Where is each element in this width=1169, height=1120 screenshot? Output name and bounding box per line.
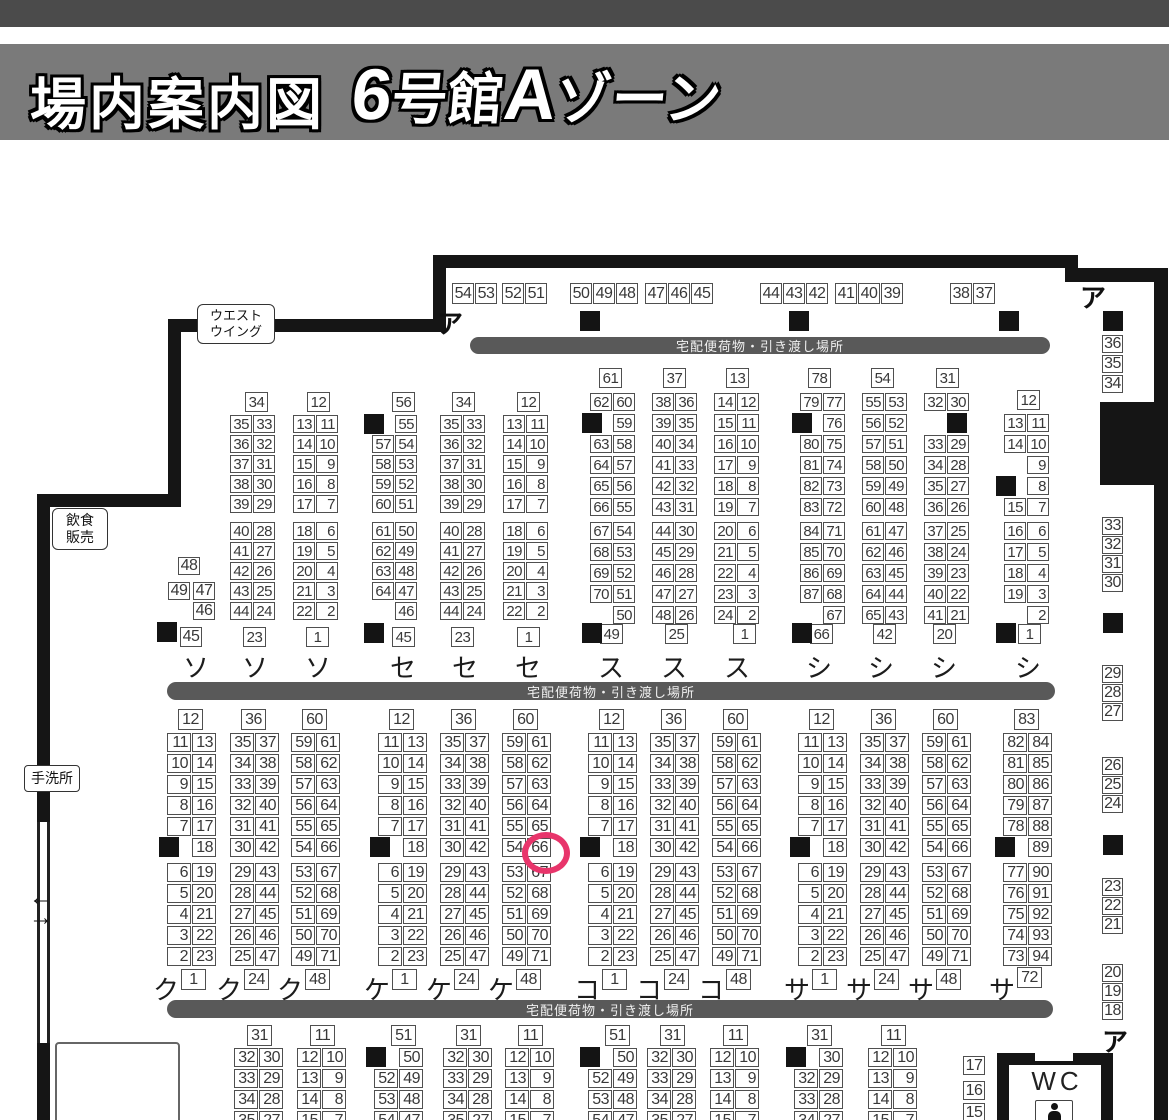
pillar: [370, 837, 390, 857]
booth-cell: 27: [860, 905, 884, 924]
booth-cell: 53: [885, 393, 907, 411]
booth-cell: 17: [823, 817, 847, 836]
booth-box: 16: [963, 1081, 985, 1100]
booth-cell: 14: [403, 754, 427, 773]
booth-cell: 45: [675, 905, 699, 924]
booth-cell: 64: [527, 796, 551, 815]
booth-cell: 38: [255, 754, 279, 773]
booth-cell: 2: [737, 606, 759, 624]
booth-cell: 64: [590, 456, 612, 474]
booth-cell: 11: [378, 733, 402, 752]
booth-cell: 6: [737, 522, 759, 540]
booth-cell: 47: [465, 947, 489, 966]
booth-cell: 5: [737, 543, 759, 561]
wc-label: WC: [1014, 1066, 1100, 1097]
booth-cell: 35: [924, 477, 946, 495]
booth-cell: 38: [675, 754, 699, 773]
booth-cell: 71: [823, 522, 845, 540]
booth-cell: 61: [372, 522, 394, 540]
booth-cell: 51: [885, 435, 907, 453]
booth-cell: 32: [675, 477, 697, 495]
booth-cell: 13: [192, 733, 216, 752]
booth-cell: 70: [823, 543, 845, 561]
booth-cell: 74: [1003, 926, 1027, 945]
booth-cell: 81: [1003, 754, 1027, 773]
column-header: 60: [933, 709, 958, 730]
booth-cell: 9: [316, 455, 338, 473]
booth-cell: 13: [1004, 414, 1026, 432]
booth-cell: 59: [372, 475, 394, 493]
booth-cell: 73: [1003, 947, 1027, 966]
booth-cell: 30: [259, 1048, 283, 1067]
booth-cell: 70: [316, 926, 340, 945]
booth-cell: 58: [291, 754, 315, 773]
booth-cell: 15: [297, 1111, 321, 1120]
booth-cell: 4: [378, 905, 402, 924]
booth-box: 23: [1102, 878, 1123, 896]
booth-cell: 57: [613, 456, 635, 474]
booth-cell: 45: [465, 905, 489, 924]
booth-cell: 17: [192, 817, 216, 836]
booth-box: 48: [616, 283, 638, 304]
booth-cell: 22: [293, 602, 315, 620]
booth-cell: 35: [440, 733, 464, 752]
pillar: [995, 837, 1015, 857]
row-label: ク: [153, 970, 179, 1007]
booth-cell: 14: [192, 754, 216, 773]
column-footer: 1: [392, 969, 417, 990]
booth-box: 19: [1102, 983, 1123, 1001]
booth-cell: 47: [675, 947, 699, 966]
booth-cell: 34: [650, 754, 674, 773]
booth-cell: 39: [440, 495, 462, 513]
booth-cell: 15: [293, 455, 315, 473]
booth-cell: 54: [374, 1111, 398, 1120]
wall-segment: [433, 255, 1078, 268]
washroom-label: 手洗所: [24, 765, 80, 792]
booth-cell: 29: [819, 1069, 843, 1088]
booth-cell: 37: [440, 455, 462, 473]
booth-cell: 8: [737, 477, 759, 495]
booth-cell: 58: [922, 754, 946, 773]
booth-cell: 39: [924, 564, 946, 582]
courier-banner: 宅配便荷物・引き渡し場所: [470, 337, 1050, 354]
booth-cell: 32: [230, 796, 254, 815]
booth-cell: 43: [255, 863, 279, 882]
booth-cell: 72: [823, 498, 845, 516]
booth-cell: 50: [613, 1048, 637, 1067]
booth-cell: 54: [291, 838, 315, 857]
booth-cell: 7: [735, 1111, 759, 1120]
row-label: サ: [989, 970, 1015, 1007]
booth-cell: 7: [588, 817, 612, 836]
bottom-left-room: [55, 1042, 180, 1120]
booth-cell: 44: [675, 884, 699, 903]
booth-box: 54: [452, 283, 474, 304]
booth-cell: 45: [255, 905, 279, 924]
booth-cell: 63: [947, 775, 971, 794]
booth-cell: 57: [291, 775, 315, 794]
booth-cell: 10: [1027, 435, 1049, 453]
row-label: ス: [724, 648, 750, 685]
zone-a-label: ア: [1102, 1022, 1128, 1059]
booth-cell: 15: [714, 414, 736, 432]
booth-cell: 24: [947, 543, 969, 561]
booth-cell: 47: [652, 585, 674, 603]
booth-cell: 23: [192, 947, 216, 966]
booth-cell: 9: [530, 1069, 554, 1088]
booth-cell: 67: [947, 863, 971, 882]
booth-cell: 70: [590, 585, 612, 603]
booth-cell: 51: [291, 905, 315, 924]
booth-cell: 63: [862, 564, 884, 582]
booth-cell: 11: [1027, 414, 1049, 432]
booth-cell: 53: [588, 1090, 612, 1109]
booth-cell: 67: [590, 522, 612, 540]
booth-cell: 28: [440, 884, 464, 903]
booth-cell: 47: [395, 582, 417, 600]
booth-cell: 53: [922, 863, 946, 882]
booth-cell: 56: [291, 796, 315, 815]
booth-cell: 70: [947, 926, 971, 945]
booth-cell: 50: [885, 456, 907, 474]
booth-cell: 13: [710, 1069, 734, 1088]
booth-cell: 27: [440, 905, 464, 924]
booth-cell: 9: [735, 1069, 759, 1088]
booth-cell: 14: [613, 754, 637, 773]
booth-cell: 48: [885, 498, 907, 516]
booth-box: 49: [168, 582, 190, 600]
booth-cell: 64: [316, 796, 340, 815]
booth-box: 34: [1102, 375, 1123, 393]
booth-cell: 83: [800, 498, 822, 516]
booth-cell: 68: [316, 884, 340, 903]
booth-cell: 80: [800, 435, 822, 453]
booth-cell: 14: [823, 754, 847, 773]
booth-cell: 8: [798, 796, 822, 815]
booth-cell: 33: [860, 775, 884, 794]
column-footer: 66: [810, 624, 833, 644]
booth-cell: 32: [443, 1048, 467, 1067]
booth-cell: 39: [652, 414, 674, 432]
booth-cell: 28: [468, 1090, 492, 1109]
booth-cell: 16: [192, 796, 216, 815]
pillar: [790, 837, 810, 857]
column-footer: 42: [873, 624, 896, 644]
booth-cell: 15: [823, 775, 847, 794]
booth-cell: 80: [1003, 775, 1027, 794]
booth-cell: 86: [800, 564, 822, 582]
booth-cell: 18: [503, 522, 525, 540]
booth-cell: 36: [230, 435, 252, 453]
booth-cell: 42: [885, 838, 909, 857]
booth-cell: 38: [652, 393, 674, 411]
booth-cell: 20: [613, 884, 637, 903]
booth-cell: 63: [590, 435, 612, 453]
booth-cell: 87: [1028, 796, 1052, 815]
booth-cell: 4: [167, 905, 191, 924]
booth-box: 51: [525, 283, 547, 304]
row-label: シ: [931, 648, 957, 685]
row-label: シ: [806, 648, 832, 685]
booth-cell: 23: [823, 947, 847, 966]
row-label: サ: [846, 970, 872, 1007]
booth-cell: 27: [947, 477, 969, 495]
column-header: 36: [661, 709, 686, 730]
booth-cell: 47: [885, 522, 907, 540]
booth-cell: 49: [395, 542, 417, 560]
booth-cell: 27: [468, 1111, 492, 1120]
booth-cell: 7: [316, 495, 338, 513]
booth-cell: 8: [316, 475, 338, 493]
booth-cell: 35: [230, 733, 254, 752]
booth-cell: 8: [526, 475, 548, 493]
booth-cell: 57: [502, 775, 526, 794]
booth-cell: 27: [253, 542, 275, 560]
booth-cell: 48: [652, 606, 674, 624]
booth-cell: 29: [253, 495, 275, 513]
booth-cell: 49: [291, 947, 315, 966]
pillar: [364, 623, 384, 643]
booth-cell: 21: [823, 905, 847, 924]
booth-cell: 42: [675, 838, 699, 857]
booth-box: 53: [475, 283, 497, 304]
pillar: [580, 1047, 600, 1067]
booth-cell: 9: [588, 775, 612, 794]
booth-cell: 35: [650, 733, 674, 752]
zone-a-label: ア: [1080, 278, 1106, 315]
booth-cell: 8: [378, 796, 402, 815]
booth-cell: 35: [440, 415, 462, 433]
booth-cell: 31: [650, 817, 674, 836]
column-header: 36: [451, 709, 476, 730]
column-header: 31: [936, 368, 959, 388]
booth-cell: 22: [714, 564, 736, 582]
booth-cell: 69: [737, 905, 761, 924]
booth-cell: 50: [395, 522, 417, 540]
booth-cell: 35: [675, 414, 697, 432]
booth-cell: 19: [613, 863, 637, 882]
booth-cell: 65: [590, 477, 612, 495]
column-footer: 24: [664, 969, 689, 990]
booth-cell: 34: [230, 754, 254, 773]
column-footer: 48: [516, 969, 541, 990]
booth-cell: 10: [322, 1048, 346, 1067]
booth-box: 30: [1102, 574, 1123, 592]
booth-box: 50: [570, 283, 592, 304]
booth-cell: 32: [440, 796, 464, 815]
booth-cell: 17: [503, 495, 525, 513]
booth-cell: 2: [167, 947, 191, 966]
column-header: 12: [809, 709, 834, 730]
booth-cell: 82: [1003, 733, 1027, 752]
booth-cell: 16: [293, 475, 315, 493]
booth-cell: 61: [316, 733, 340, 752]
booth-cell: 20: [192, 884, 216, 903]
booth-cell: 26: [860, 926, 884, 945]
booth-cell: 29: [259, 1069, 283, 1088]
booth-cell: 23: [714, 585, 736, 603]
booth-cell: 26: [675, 606, 697, 624]
booth-cell: 35: [230, 415, 252, 433]
booth-cell: 35: [443, 1111, 467, 1120]
booth-cell: 27: [672, 1111, 696, 1120]
booth-cell: 94: [1028, 947, 1052, 966]
booth-cell: 25: [463, 582, 485, 600]
column-header: 11: [310, 1025, 335, 1046]
booth-cell: 9: [893, 1069, 917, 1088]
row-label: コ: [636, 970, 662, 1007]
booth-cell: 49: [613, 1069, 637, 1088]
booth-cell: 49: [712, 947, 736, 966]
booth-cell: 45: [885, 564, 907, 582]
column-header: 60: [723, 709, 748, 730]
booth-cell: 16: [613, 796, 637, 815]
column-header: 13: [726, 368, 749, 388]
booth-box: 49: [593, 283, 615, 304]
booth-cell: 31: [253, 455, 275, 473]
booth-cell: 22: [613, 926, 637, 945]
booth-cell: 89: [1028, 838, 1052, 857]
booth-cell: 53: [374, 1090, 398, 1109]
row-label: ソ: [183, 648, 209, 685]
column-footer: 48: [726, 969, 751, 990]
booth-cell: 31: [675, 498, 697, 516]
booth-cell: 37: [255, 733, 279, 752]
booth-cell: 67: [737, 863, 761, 882]
booth-cell: 28: [463, 522, 485, 540]
wall-segment: [1154, 268, 1168, 1120]
booth-cell: 58: [502, 754, 526, 773]
booth-cell: 62: [590, 393, 612, 411]
booth-cell: 15: [710, 1111, 734, 1120]
booth-cell: 15: [403, 775, 427, 794]
booth-cell: 31: [463, 455, 485, 473]
booth-cell: 25: [860, 947, 884, 966]
booth-cell: 42: [440, 562, 462, 580]
booth-cell: 60: [862, 498, 884, 516]
booth-cell: 22: [823, 926, 847, 945]
booth-cell: 21: [613, 905, 637, 924]
booth-cell: 92: [1028, 905, 1052, 924]
booth-cell: 4: [588, 905, 612, 924]
column-footer: 1: [733, 624, 756, 644]
booth-cell: 42: [465, 838, 489, 857]
booth-cell: 31: [440, 817, 464, 836]
row-label: ク: [216, 970, 242, 1007]
booth-cell: 11: [316, 415, 338, 433]
booth-cell: 43: [230, 582, 252, 600]
booth-cell: 32: [647, 1048, 671, 1067]
booth-cell: 34: [440, 754, 464, 773]
booth-cell: 88: [1028, 817, 1052, 836]
booth-cell: 25: [947, 522, 969, 540]
column-header: 34: [245, 392, 268, 412]
booth-cell: 36: [440, 435, 462, 453]
booth-box: 45: [691, 283, 713, 304]
pillar: [1103, 613, 1123, 633]
booth-cell: 61: [737, 733, 761, 752]
column-footer: 24: [874, 969, 899, 990]
booth-cell: 10: [798, 754, 822, 773]
booth-cell: 91: [1028, 884, 1052, 903]
booth-cell: 44: [230, 602, 252, 620]
booth-cell: 2: [316, 602, 338, 620]
booth-cell: 7: [526, 495, 548, 513]
booth-cell: 38: [230, 475, 252, 493]
booth-cell: 28: [819, 1090, 843, 1109]
row-label: ス: [661, 648, 687, 685]
booth-cell: 5: [167, 884, 191, 903]
booth-cell: 10: [735, 1048, 759, 1067]
booth-cell: 90: [1028, 863, 1052, 882]
booth-cell: 46: [395, 602, 417, 620]
booth-cell: 10: [588, 754, 612, 773]
booth-cell: 64: [372, 582, 394, 600]
booth-cell: 26: [440, 926, 464, 945]
booth-cell: 41: [230, 542, 252, 560]
booth-cell: 30: [650, 838, 674, 857]
column-footer: 45: [392, 627, 415, 647]
booth-cell: 52: [712, 884, 736, 903]
booth-cell: 5: [1027, 543, 1049, 561]
booth-cell: 13: [868, 1069, 892, 1088]
booth-cell: 70: [527, 926, 551, 945]
booth-cell: 62: [316, 754, 340, 773]
booth-cell: 65: [947, 817, 971, 836]
booth-cell: 33: [230, 775, 254, 794]
booth-cell: 84: [800, 522, 822, 540]
booth-cell: 15: [1004, 498, 1026, 516]
column-footer: 1: [181, 969, 206, 990]
booth-cell: 29: [672, 1069, 696, 1088]
booth-box: 29: [1102, 665, 1123, 683]
wall-segment: [168, 319, 181, 507]
booth-cell: 33: [253, 415, 275, 433]
booth-cell: 7: [737, 498, 759, 516]
booth-cell: 69: [527, 905, 551, 924]
booth-cell: 34: [443, 1090, 467, 1109]
booth-cell: 13: [823, 733, 847, 752]
booth-cell: 61: [862, 522, 884, 540]
booth-box: 37: [973, 283, 995, 304]
booth-cell: 66: [947, 838, 971, 857]
column-footer: 49: [600, 624, 623, 644]
booth-cell: 53: [712, 863, 736, 882]
booth-cell: 21: [503, 582, 525, 600]
booth-cell: 59: [613, 414, 635, 432]
booth-cell: 2: [588, 947, 612, 966]
booth-cell: 43: [465, 863, 489, 882]
booth-cell: 10: [167, 754, 191, 773]
booth-cell: 30: [672, 1048, 696, 1067]
booth-cell: 65: [737, 817, 761, 836]
booth-cell: 53: [395, 455, 417, 473]
pillar: [996, 623, 1016, 643]
booth-box: 15: [963, 1103, 985, 1120]
booth-cell: 75: [823, 435, 845, 453]
booth-cell: 34: [924, 456, 946, 474]
booth-cell: 27: [819, 1111, 843, 1120]
booth-cell: 29: [440, 863, 464, 882]
booth-cell: 14: [714, 393, 736, 411]
booth-cell: 51: [395, 495, 417, 513]
pillar: [996, 476, 1016, 496]
booth-cell: 10: [530, 1048, 554, 1067]
booth-cell: 30: [463, 475, 485, 493]
booth-cell: 55: [613, 498, 635, 516]
booth-cell: 60: [613, 393, 635, 411]
